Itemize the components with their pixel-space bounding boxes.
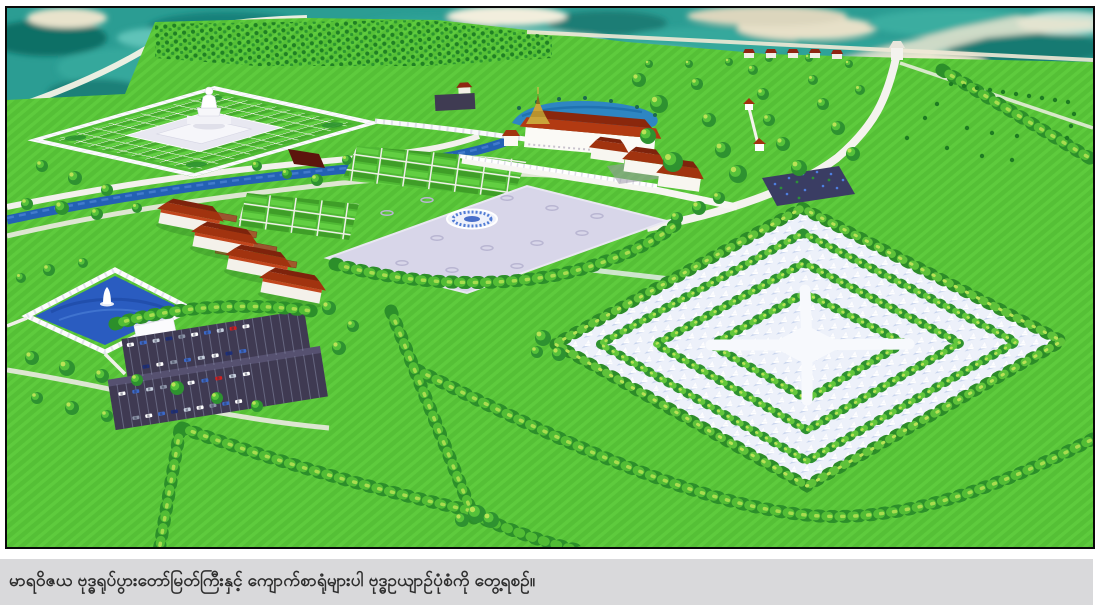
aerial-rendering-photo (5, 6, 1095, 549)
plaza-emblem (447, 210, 497, 229)
caption-text: မာရဝိဇယ ဗုဒ္ဓရုပ်ပွားတော်မြတ်ကြီးနှင့် က… (0, 570, 535, 595)
entrance-gate (889, 41, 905, 60)
page: မာရဝိဇယ ဗုဒ္ဓရုပ်ပွားတော်မြတ်ကြီးနှင့် က… (0, 0, 1109, 605)
caption-bar: မာရဝိဇယ ဗုဒ္ဓရုပ်ပွားတော်မြတ်ကြီးနှင့် က… (0, 559, 1093, 605)
rendering-scene (7, 8, 1093, 547)
small-shrine (502, 130, 520, 146)
